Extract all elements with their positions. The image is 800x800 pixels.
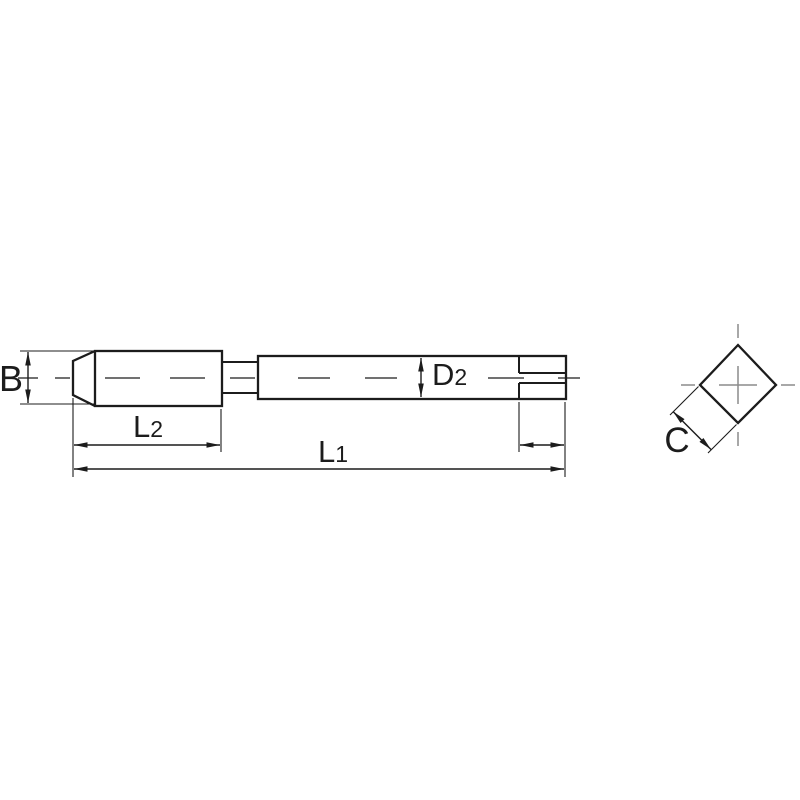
dimension-b: B [0,351,95,404]
technical-drawing-canvas: B L2 L1 D2 [0,0,800,800]
side-view: B L2 L1 D2 [0,351,580,477]
dimension-l2: L2 [73,398,221,477]
section-centerline-icon [681,324,795,446]
label-c: C [664,421,689,460]
label-b: B [0,358,23,399]
label-d2: D2 [432,357,467,392]
dimension-d2: D2 [421,357,467,397]
label-l2: L2 [133,409,163,444]
dimension-c: C [664,387,736,461]
tip-chamfer [73,351,95,406]
dimension-square-length [519,402,564,452]
square-section-view: C [664,324,795,460]
label-l1: L1 [318,434,348,469]
